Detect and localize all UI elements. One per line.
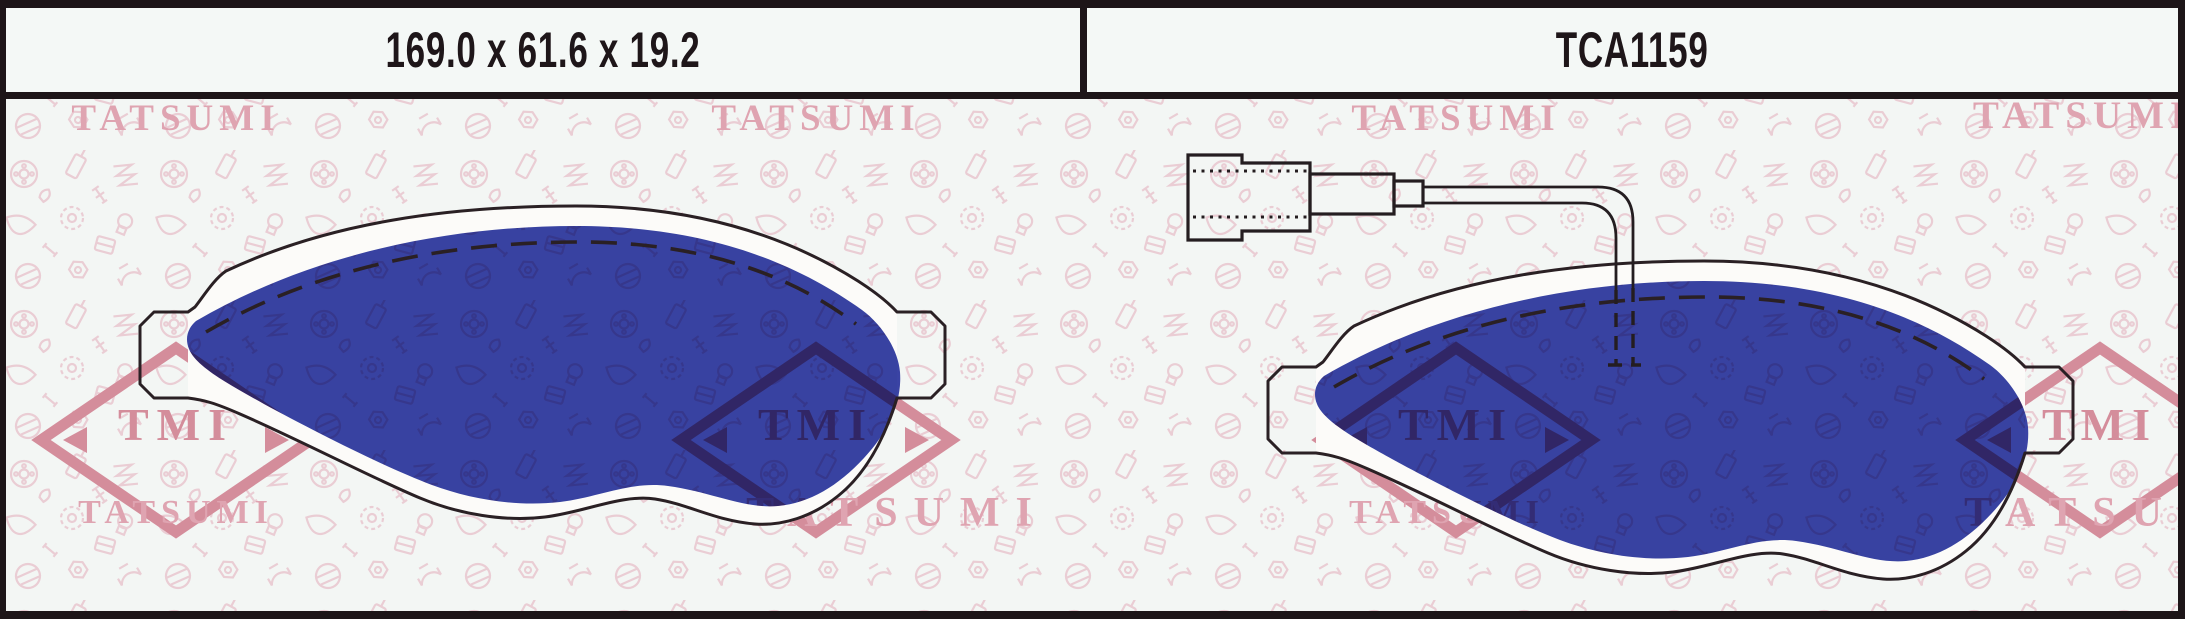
dimensions-cell: 169.0 x 61.6 x 19.2 — [6, 8, 1080, 92]
catalog-card: 169.0 x 61.6 x 19.2 TCA1159 — [0, 0, 2185, 619]
diagram-canvas: TATSUMI TATSUMI TATSUMI TATSUMI TMI TMI — [6, 99, 2178, 611]
dimensions-label: 169.0 x 61.6 x 19.2 — [386, 21, 701, 79]
tatsumi-watermark: TATSUMI — [1351, 99, 1560, 139]
diagram-area: TATSUMI TATSUMI TATSUMI TATSUMI TMI TMI — [6, 99, 2178, 611]
tatsumi-watermark: TATSUMI — [711, 99, 920, 139]
tmi-logo-text: TMI — [2042, 399, 2158, 450]
part-number-cell: TCA1159 — [1087, 8, 2178, 92]
tatsumi-watermark: TATSUMI — [1973, 99, 2178, 137]
tatsumi-watermark: TATSUMI — [71, 99, 280, 139]
part-number-label: TCA1159 — [1556, 21, 1709, 79]
tatsumi-watermark: TATSUMI — [78, 494, 274, 531]
tmi-logo-text: TMI — [118, 399, 234, 450]
